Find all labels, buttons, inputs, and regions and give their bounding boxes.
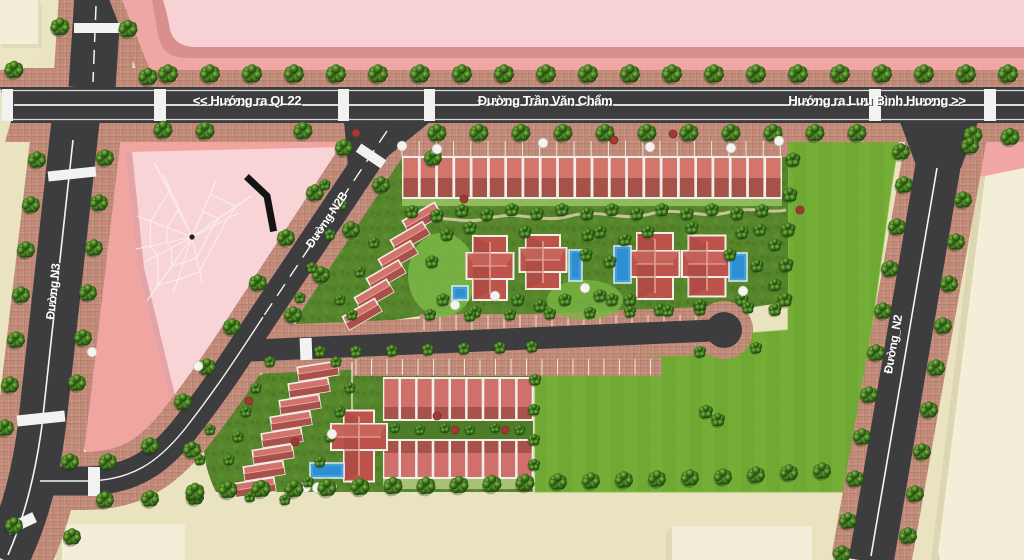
svg-text:<< Hướng ra QL22: << Hướng ra QL22: [193, 93, 302, 108]
svg-text:Đường Trần Văn Chẩm: Đường Trần Văn Chẩm: [478, 93, 613, 108]
svg-text:Hướng ra Lưu Bình Hương >>: Hướng ra Lưu Bình Hương >>: [788, 93, 966, 108]
